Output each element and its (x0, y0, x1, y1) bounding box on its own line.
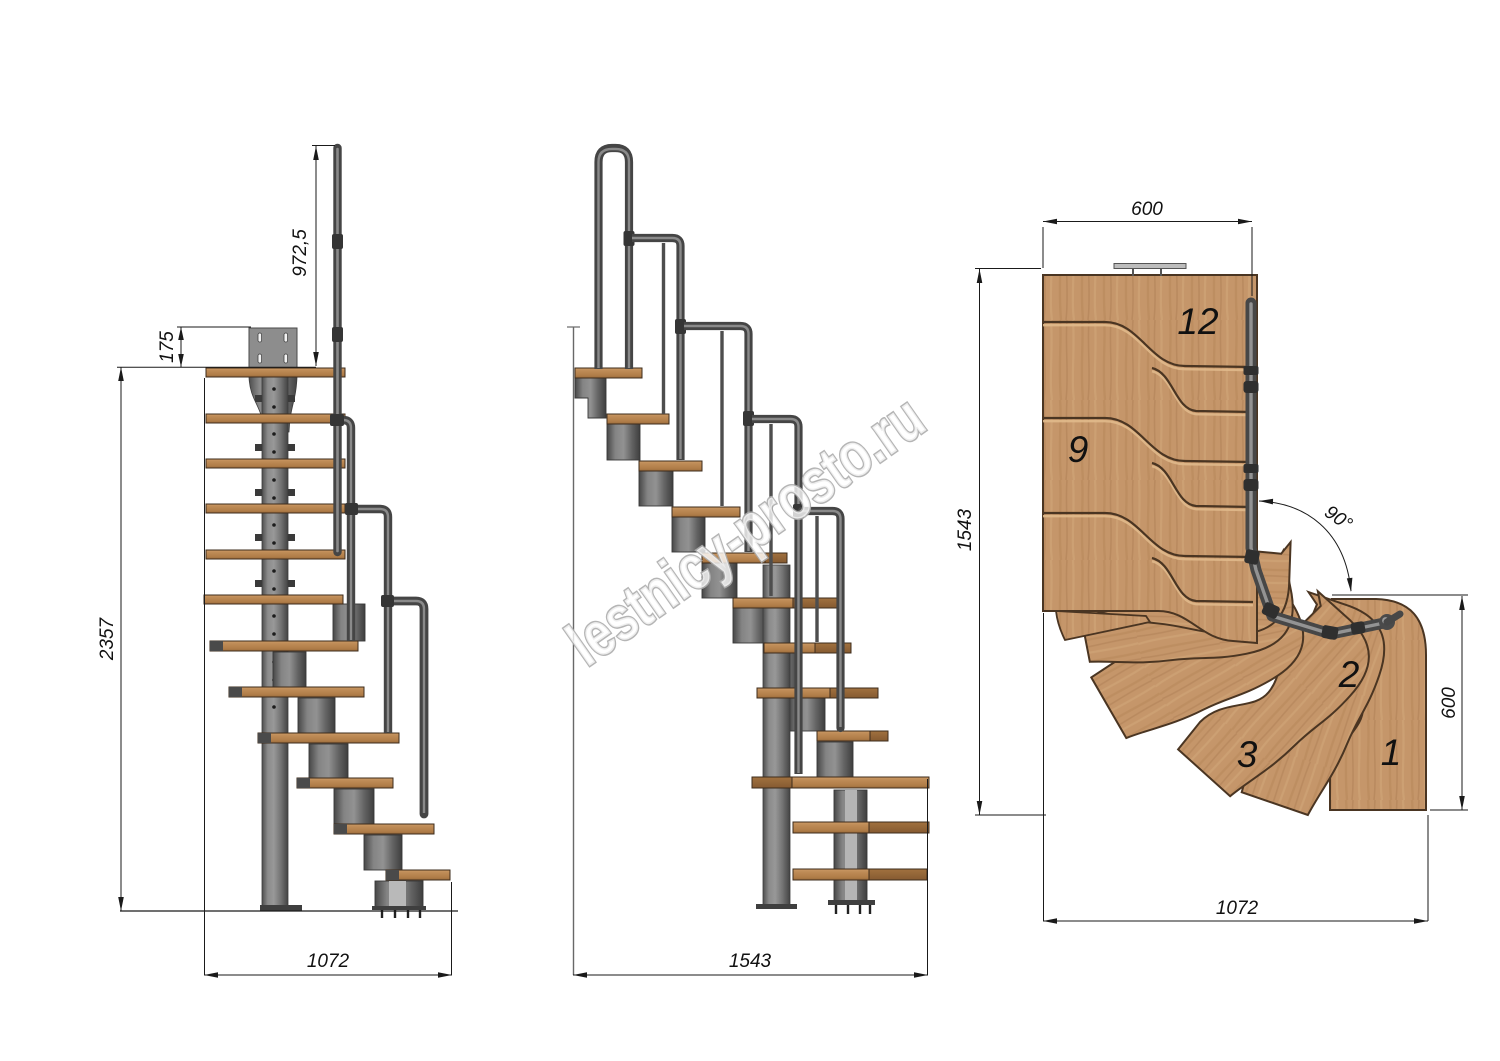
svg-text:175: 175 (157, 331, 178, 363)
svg-text:1543: 1543 (955, 508, 976, 551)
svg-text:2: 2 (1338, 654, 1360, 695)
svg-text:1543: 1543 (729, 951, 772, 972)
svg-text:1: 1 (1381, 732, 1402, 773)
svg-text:9: 9 (1068, 429, 1089, 470)
svg-text:972,5: 972,5 (290, 229, 311, 277)
svg-text:2357: 2357 (97, 616, 118, 661)
svg-text:3: 3 (1237, 734, 1258, 775)
svg-text:1072: 1072 (1216, 898, 1259, 919)
svg-text:600: 600 (1131, 199, 1163, 220)
svg-text:1072: 1072 (307, 951, 350, 972)
svg-text:12: 12 (1177, 301, 1219, 342)
svg-text:600: 600 (1439, 687, 1460, 719)
